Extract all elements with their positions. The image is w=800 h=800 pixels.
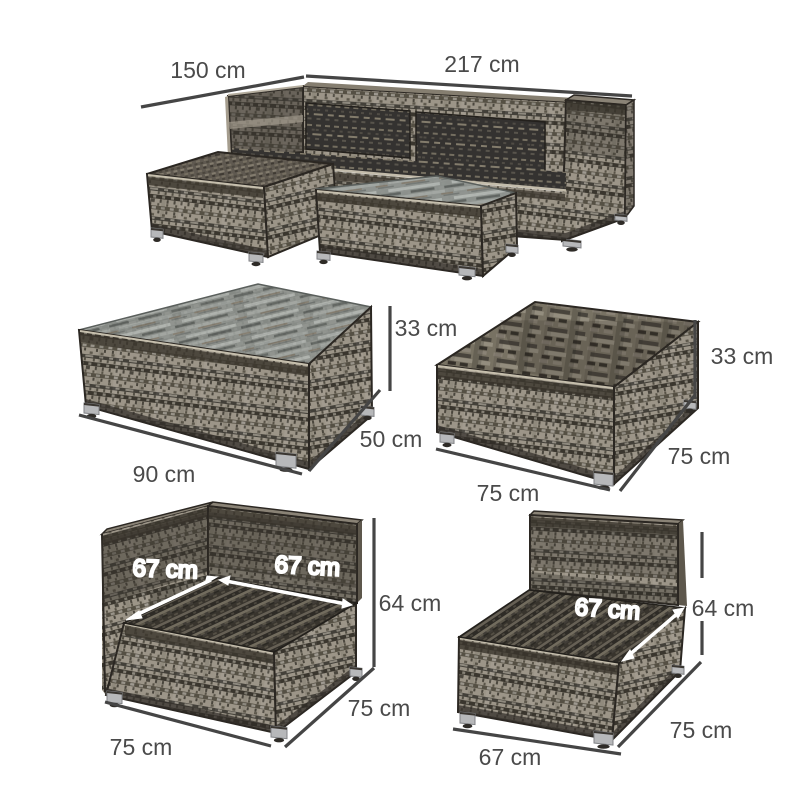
svg-text:33 cm: 33 cm xyxy=(395,315,458,341)
svg-text:67 cm: 67 cm xyxy=(574,594,641,625)
svg-text:75 cm: 75 cm xyxy=(348,695,411,721)
svg-text:67 cm: 67 cm xyxy=(274,551,341,581)
svg-text:90 cm: 90 cm xyxy=(133,461,196,487)
svg-text:50 cm: 50 cm xyxy=(360,426,423,452)
svg-text:150 cm: 150 cm xyxy=(170,57,245,83)
svg-text:67 cm: 67 cm xyxy=(132,555,198,584)
svg-text:217 cm: 217 cm xyxy=(444,51,519,77)
svg-text:75 cm: 75 cm xyxy=(668,443,731,469)
svg-text:64 cm: 64 cm xyxy=(692,595,755,621)
svg-text:64 cm: 64 cm xyxy=(379,590,442,616)
svg-text:75 cm: 75 cm xyxy=(670,717,733,743)
svg-text:67 cm: 67 cm xyxy=(479,744,542,770)
svg-text:75 cm: 75 cm xyxy=(110,734,173,760)
svg-text:75 cm: 75 cm xyxy=(477,480,540,506)
svg-text:33 cm: 33 cm xyxy=(711,343,774,369)
